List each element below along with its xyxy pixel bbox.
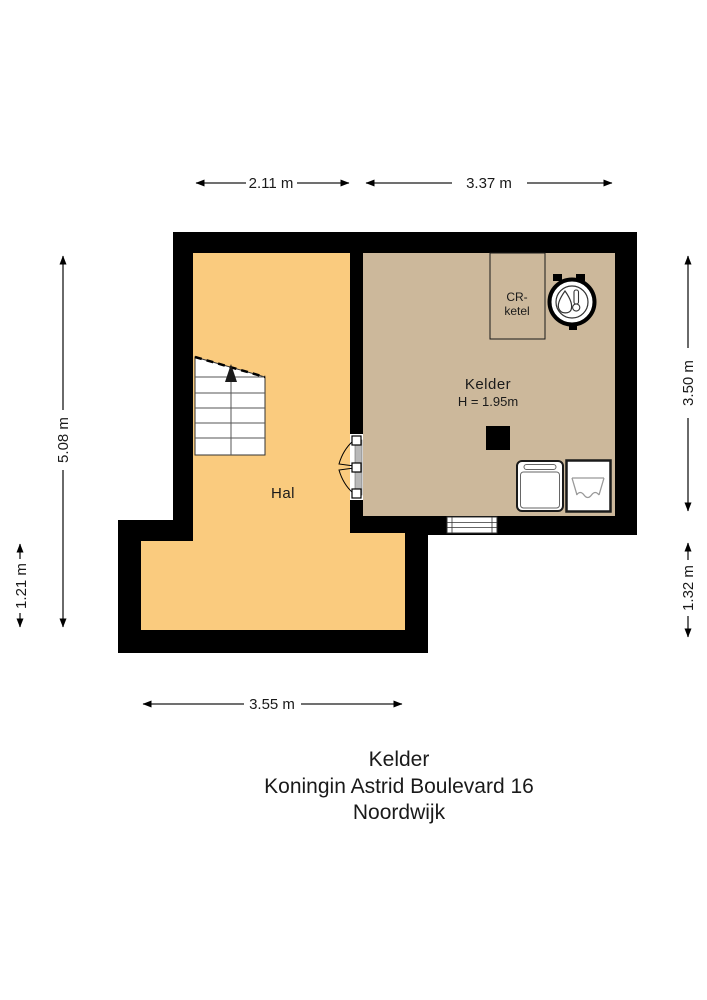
dim-label-right-lower: 1.32 m xyxy=(680,565,697,611)
washing-machine-icon xyxy=(517,461,563,511)
dim-label-right: 3.50 m xyxy=(680,360,697,406)
dim-label-left: 5.08 m xyxy=(55,417,72,463)
floor-plan-page: CR- ketel Hal Kelder H = 1.95m xyxy=(0,0,707,1000)
title-floor-name: Kelder xyxy=(369,748,430,771)
title-address: Koningin Astrid Boulevard 16 xyxy=(264,775,534,798)
boiler-thermometer-bulb xyxy=(573,304,580,311)
room-label-hal: Hal xyxy=(271,485,295,502)
washing-machine-lid xyxy=(521,472,560,508)
dim-label-top-left: 2.11 m xyxy=(249,175,294,192)
washing-machine-panel xyxy=(524,465,556,470)
door-hinge-block xyxy=(352,463,361,472)
door-hinge-block xyxy=(352,436,361,445)
sink-body xyxy=(567,461,611,512)
room-label-kelder: Kelder xyxy=(465,376,511,393)
window-icon xyxy=(447,517,497,533)
boiler-tab xyxy=(553,274,562,281)
window-frame xyxy=(447,517,497,533)
cr-ketel-label-line2: ketel xyxy=(504,304,529,318)
title-block: Kelder Koningin Astrid Boulevard 16 Noor… xyxy=(264,748,534,824)
room-label-kelder-height: H = 1.95m xyxy=(458,394,518,409)
dim-label-left-lower: 1.21 m xyxy=(13,563,30,609)
dim-label-bottom: 3.55 m xyxy=(249,696,295,713)
boiler-thermometer-stem xyxy=(574,290,579,304)
cr-ketel-label-line1: CR- xyxy=(506,290,527,304)
door-hinge-block xyxy=(352,489,361,498)
title-city: Noordwijk xyxy=(353,801,446,824)
dim-label-top-right: 3.37 m xyxy=(466,175,512,192)
floor-plan-drawing: CR- ketel Hal Kelder H = 1.95m xyxy=(0,0,707,1000)
chimney-duct xyxy=(486,426,510,450)
sink-icon xyxy=(567,461,611,512)
